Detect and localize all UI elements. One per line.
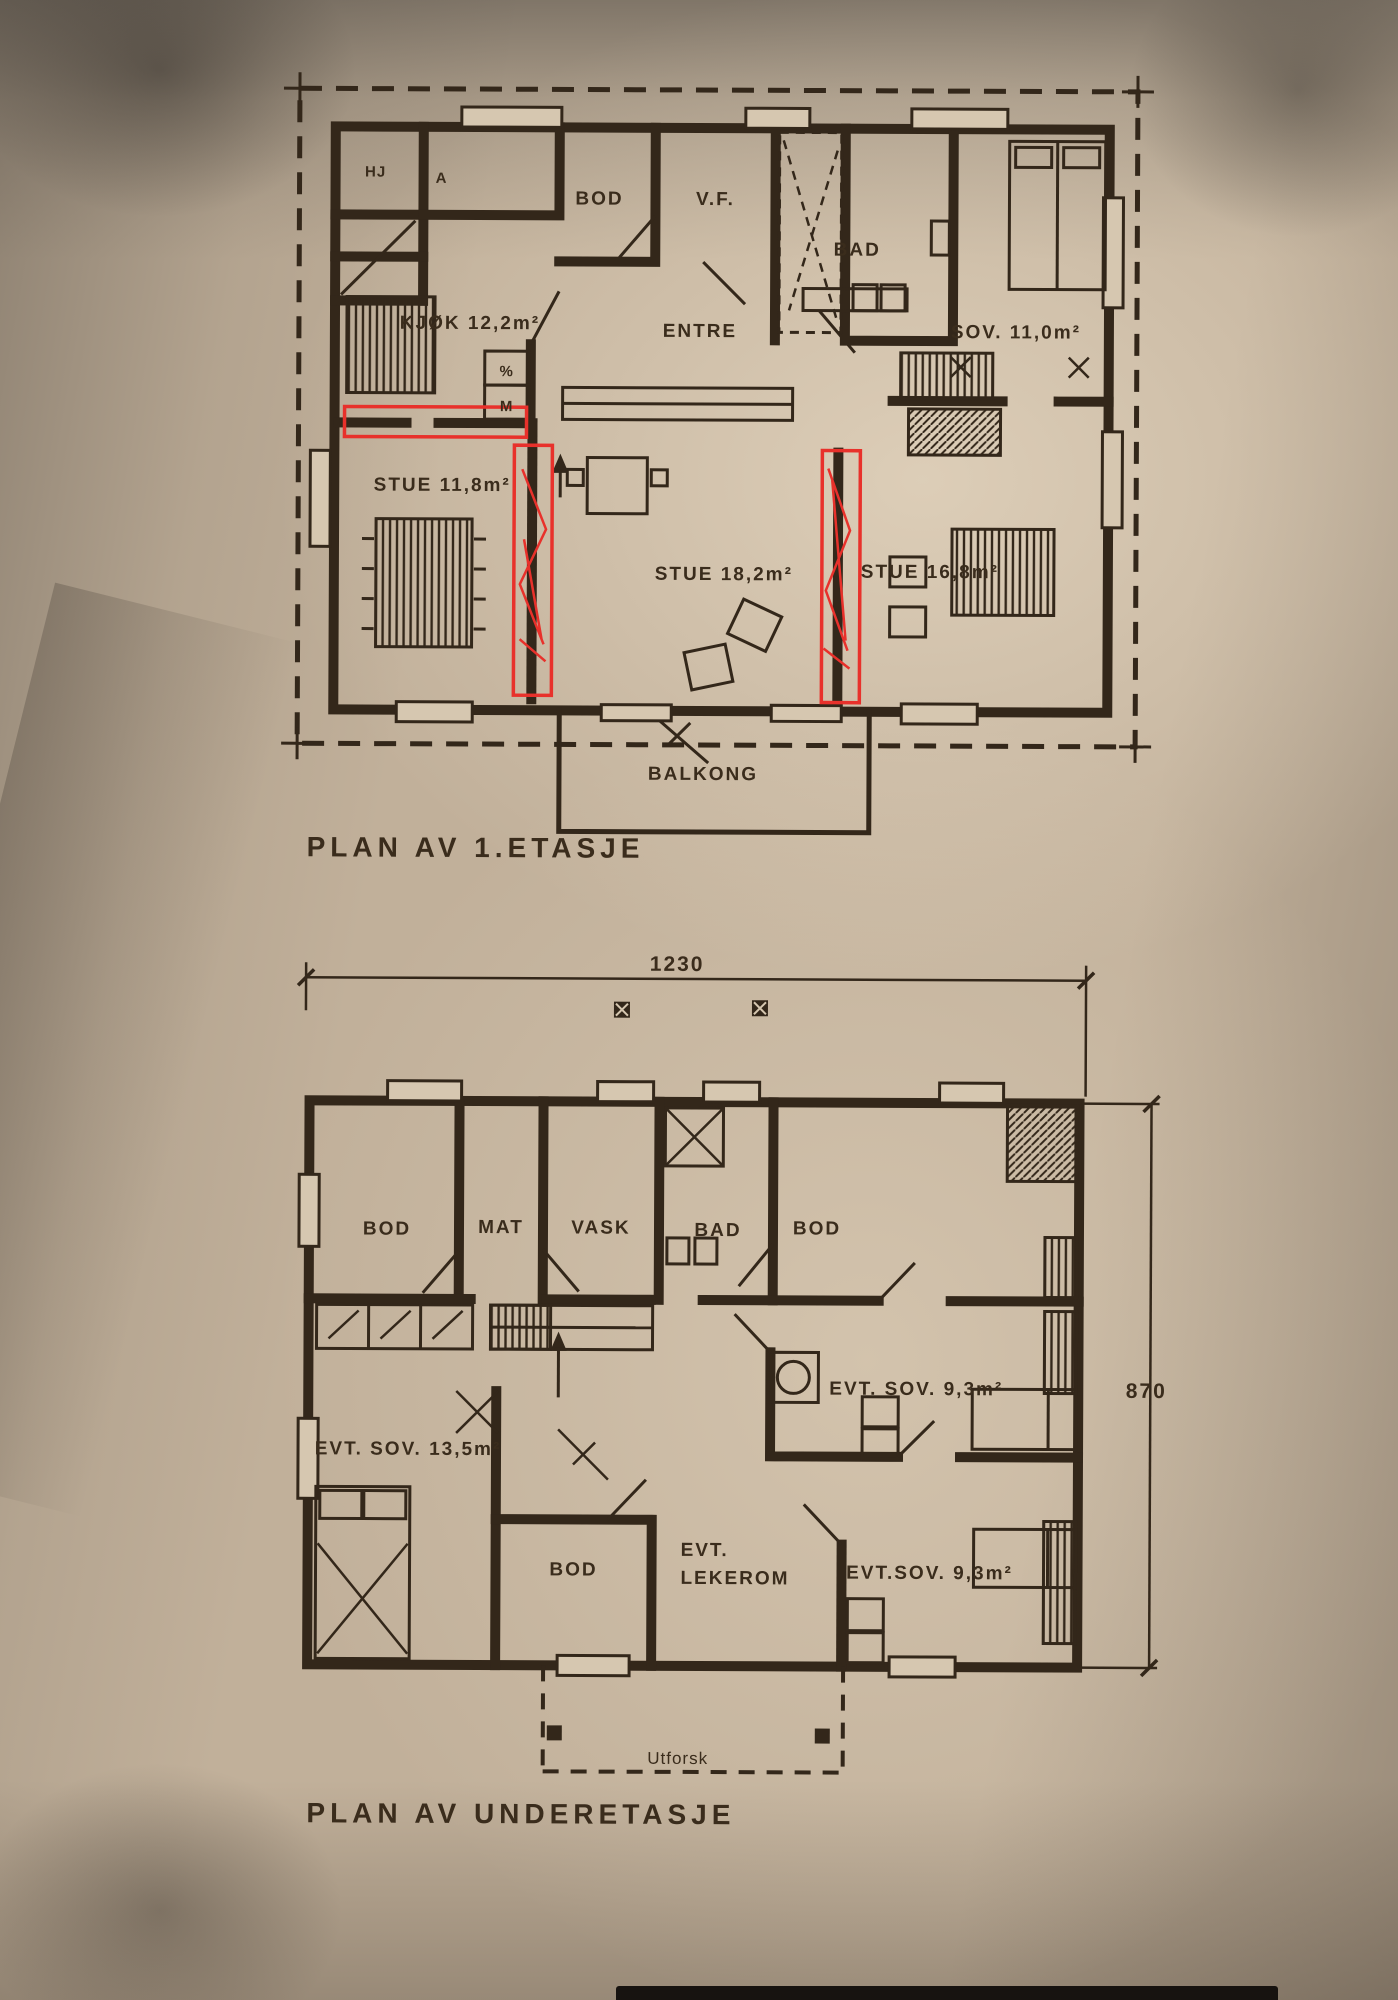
room-label-balkong: BALKONG <box>648 764 758 785</box>
room-label-bod-left: BOD <box>363 1219 411 1240</box>
room-label-evt-sov-mid: EVT. SOV. 9,3m² <box>829 1379 1003 1401</box>
plan2-site-posts <box>614 1000 768 1019</box>
dimension-width: 1230 <box>650 953 705 976</box>
plan1-room-labels: HJ A BOD V.F. BAD SOV. 11,0m² KJØK 12,2m… <box>362 164 1081 787</box>
floorplan-photo: HJ A BOD V.F. BAD SOV. 11,0m² KJØK 12,2m… <box>0 0 1398 2000</box>
desk-edge-band <box>616 1986 1278 2000</box>
plan2-title: PLAN AV UNDERETASJE <box>306 1797 735 1830</box>
room-label-hj: HJ <box>365 164 386 181</box>
room-label-a: A <box>436 170 448 187</box>
room-label-mat: MAT <box>478 1217 524 1238</box>
floorplan-drawing: HJ A BOD V.F. BAD SOV. 11,0m² KJØK 12,2m… <box>0 0 1398 2000</box>
symbol-dishwasher: % <box>500 363 514 380</box>
dimension-height: 870 <box>1126 1380 1167 1403</box>
room-label-bod-right: BOD <box>793 1218 841 1239</box>
room-label-evt-sov-left: EVT. SOV. 13,5m² <box>315 1438 502 1460</box>
room-label-lekerom-line1: EVT. <box>681 1540 729 1561</box>
room-label-evt-sov-bottom: EVT.SOV. 9,3m² <box>846 1563 1013 1585</box>
room-label-lekerom-line2: LEKEROM <box>680 1568 789 1589</box>
room-label-kjok: KJØK 12,2m² <box>400 313 540 335</box>
room-label-bod-bottom: BOD <box>549 1559 597 1580</box>
room-label-bod: BOD <box>575 188 623 209</box>
room-label-entre: ENTRE <box>663 321 737 342</box>
symbol-m: M <box>500 398 514 415</box>
room-label-bad: BAD <box>694 1220 741 1241</box>
room-label-vf: V.F. <box>696 189 735 210</box>
room-label-vask: VASK <box>571 1217 630 1238</box>
label-utforsk: Utforsk <box>647 1749 708 1768</box>
plan2-room-labels: 1230 870 BOD MAT VASK BAD BOD EVT. SOV. … <box>313 951 1168 1770</box>
room-label-sov: SOV. 11,0m² <box>951 322 1081 344</box>
room-label-stue-right: STUE 16,8m² <box>861 562 999 584</box>
room-label-stue-center: STUE 18,2m² <box>655 564 793 586</box>
room-label-bad: BAD <box>834 240 881 261</box>
room-label-stue-left: STUE 11,8m² <box>374 475 511 497</box>
plan1-dashed-boundary <box>281 72 1154 763</box>
plan1-title: PLAN AV 1.ETASJE <box>307 831 645 863</box>
